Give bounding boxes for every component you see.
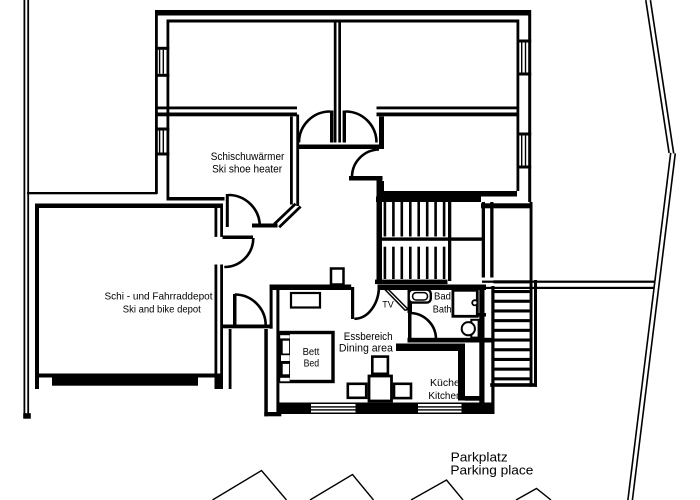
svg-text:Essbereich: Essbereich bbox=[344, 331, 393, 343]
svg-text:TV: TV bbox=[382, 300, 394, 310]
svg-text:Bed: Bed bbox=[304, 358, 320, 369]
svg-text:Kitchen: Kitchen bbox=[428, 391, 461, 402]
svg-text:Dining area: Dining area bbox=[339, 343, 393, 355]
svg-text:Ski and bike depot: Ski and bike depot bbox=[123, 305, 201, 316]
svg-text:Schischuwärmer: Schischuwärmer bbox=[211, 151, 285, 163]
svg-text:Bath: Bath bbox=[433, 305, 452, 316]
svg-text:Schi - und Fahrraddepot: Schi - und Fahrraddepot bbox=[105, 292, 213, 303]
svg-text:Bett: Bett bbox=[303, 347, 320, 358]
svg-text:Ski shoe heater: Ski shoe heater bbox=[212, 163, 282, 175]
svg-text:Bad: Bad bbox=[434, 292, 451, 303]
svg-text:Parking place: Parking place bbox=[450, 463, 533, 478]
svg-text:Küche: Küche bbox=[430, 378, 460, 389]
